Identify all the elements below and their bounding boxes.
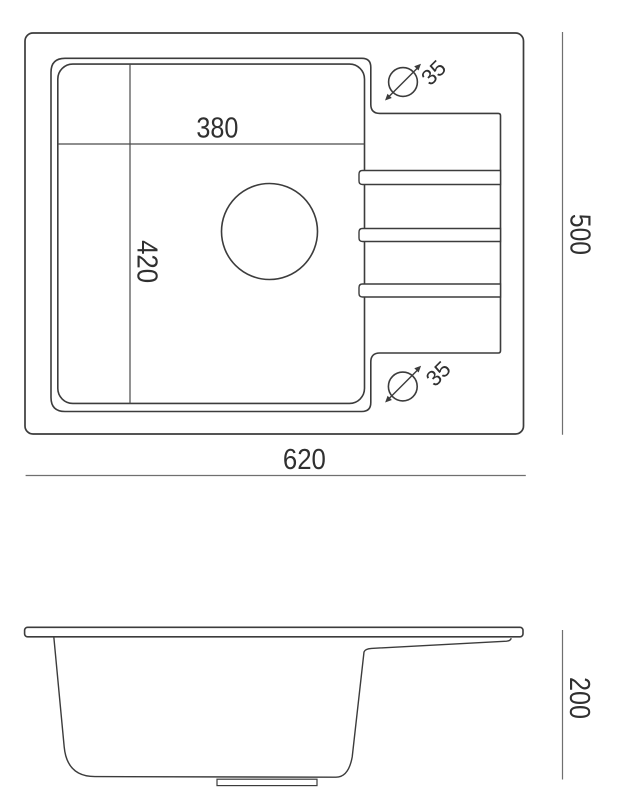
svg-text:35: 35 bbox=[421, 356, 456, 391]
svg-text:380: 380 bbox=[196, 113, 238, 145]
svg-text:200: 200 bbox=[563, 677, 595, 719]
svg-text:620: 620 bbox=[283, 444, 326, 476]
svg-text:35: 35 bbox=[416, 55, 451, 90]
svg-text:500: 500 bbox=[564, 214, 596, 255]
svg-text:420: 420 bbox=[131, 240, 163, 283]
